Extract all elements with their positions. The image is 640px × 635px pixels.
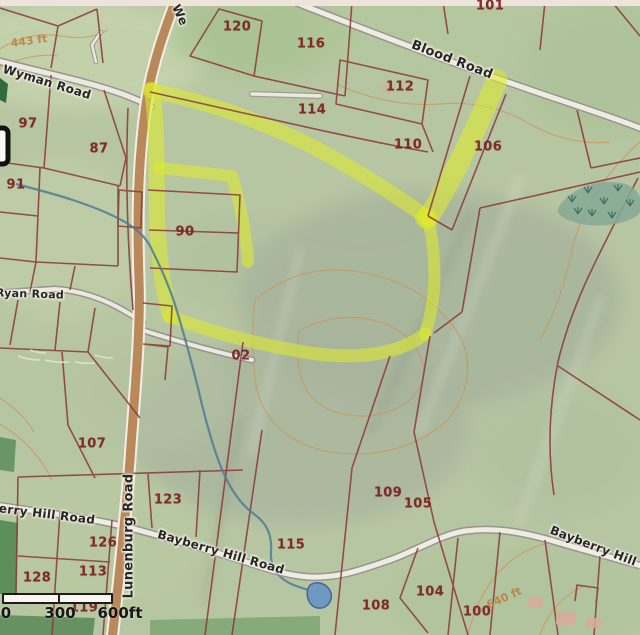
- parcel-label-105: 105: [404, 497, 432, 512]
- pond: [307, 583, 331, 608]
- parcel-label-120: 120: [223, 20, 251, 35]
- marker-partial: [0, 128, 8, 164]
- scale-label-0: 0: [1, 604, 11, 622]
- road-label-lunenburg: Lunenburg Road: [122, 474, 137, 599]
- parcel-label-128: 128: [23, 571, 51, 586]
- parcel-label-123: 123: [154, 493, 182, 508]
- parcel-label-116: 116: [297, 37, 325, 52]
- scale-label-600ft: 600ft: [97, 604, 142, 622]
- parcel-label-114: 114: [298, 103, 326, 118]
- parcel-label-90: 90: [176, 225, 195, 240]
- parcel-label-87: 87: [90, 142, 109, 157]
- parcel-label-126: 126: [89, 536, 117, 551]
- parcel-label-108: 108: [362, 599, 390, 614]
- parcel-label-115: 115: [277, 538, 305, 553]
- road-label-ryan: Ryan Road: [0, 286, 64, 301]
- parcel-label-106: 106: [474, 140, 502, 155]
- scale-bar: [2, 593, 113, 604]
- parcel-label-112: 112: [386, 80, 414, 95]
- parcel-label-110: 110: [394, 138, 422, 153]
- photo-edge: [0, 0, 640, 6]
- parcel-map-photo: 120 116 101 112 114 110 106 97 87 91 90 …: [0, 0, 640, 635]
- parcel-label-97: 97: [19, 117, 38, 132]
- parcel-label-104: 104: [416, 585, 444, 600]
- parcel-label-02: 02: [232, 349, 251, 364]
- parcel-label-101: 101: [476, 0, 504, 14]
- parcel-label-107: 107: [78, 437, 106, 452]
- parcel-label-113: 113: [79, 565, 107, 580]
- scale-label-300: 300: [44, 604, 75, 622]
- parcel-label-91: 91: [7, 178, 26, 193]
- scale-bar-mid-tick: [58, 595, 60, 602]
- parcel-label-109: 109: [374, 486, 402, 501]
